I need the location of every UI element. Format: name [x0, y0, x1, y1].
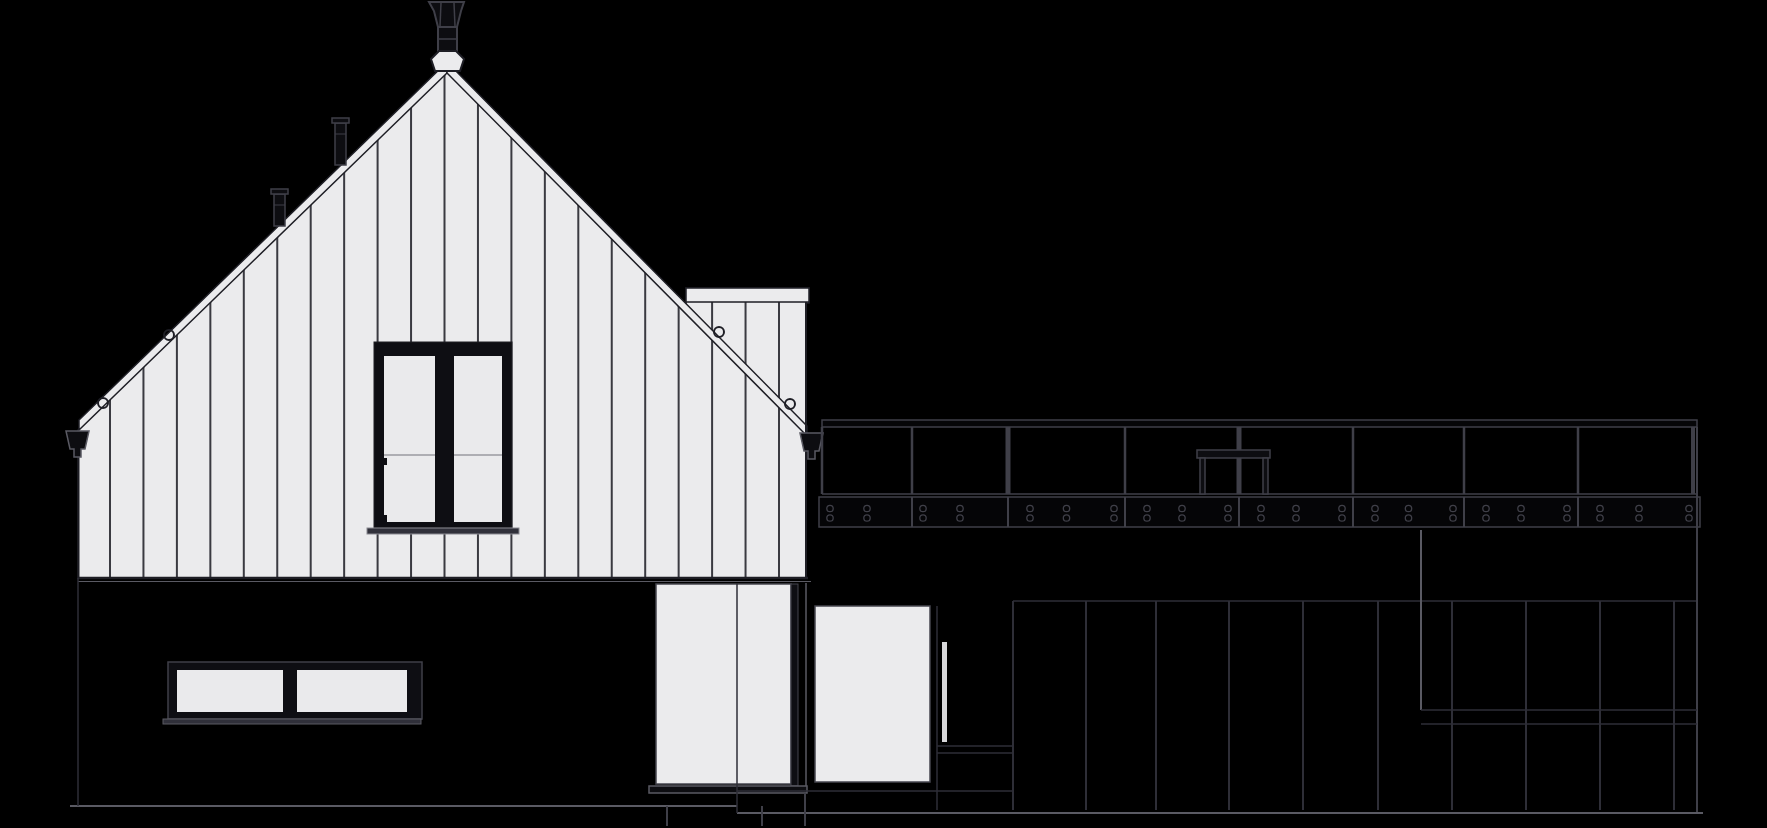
elevation-canvas: [0, 0, 1767, 828]
dormer: [686, 288, 809, 302]
deck-fascia: [819, 497, 1700, 527]
picture-window: [367, 342, 519, 534]
patio-door: [649, 583, 807, 793]
basement-window: [163, 662, 422, 724]
house-elevation-drawing: [0, 0, 1767, 828]
